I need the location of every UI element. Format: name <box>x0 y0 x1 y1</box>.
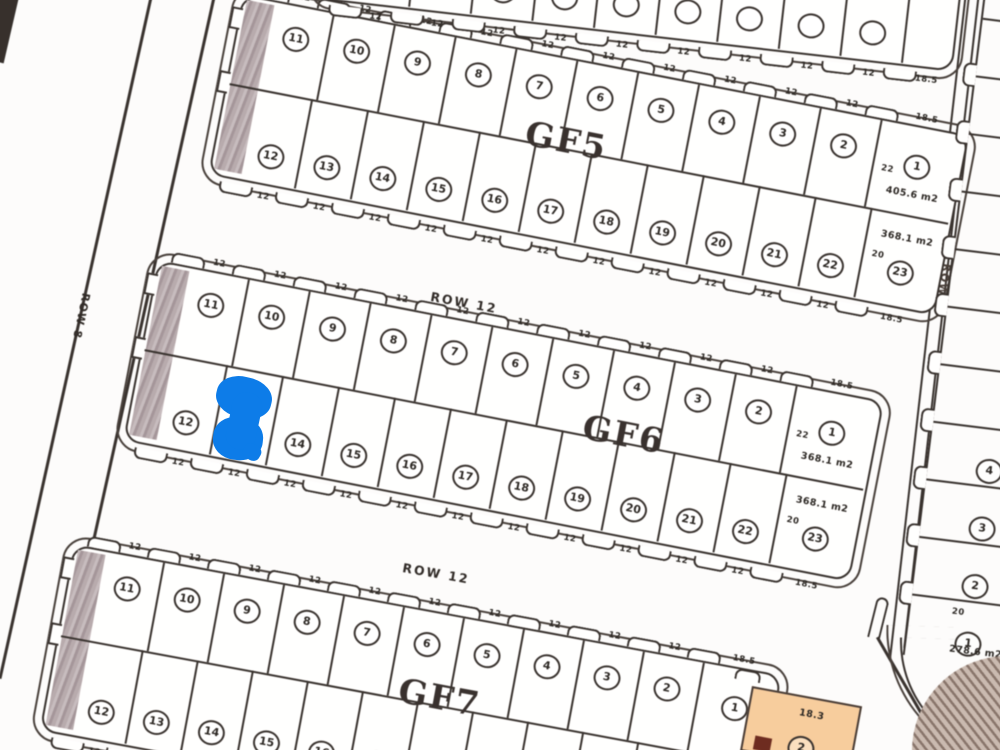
entrance-tab <box>658 346 693 363</box>
plot-number-circle: 1 <box>901 152 932 182</box>
plot-number-circle: 4 <box>974 457 1000 485</box>
plot-divider <box>620 73 639 160</box>
plot-number-circle: 5 <box>560 362 591 392</box>
entrance-tab <box>447 602 482 619</box>
plot-width-label: 12 <box>498 520 529 536</box>
plot-number-circle: 4 <box>621 373 652 403</box>
street-label-row8-left: ROW 8 <box>68 280 95 351</box>
plot-number-circle: 11 <box>111 574 142 604</box>
plot-divider <box>954 248 1000 271</box>
plot-number-circle: 22 <box>729 517 760 547</box>
plot-number-circle: 10 <box>256 302 287 332</box>
plot-divider <box>797 197 817 287</box>
plot-divider <box>377 398 397 488</box>
plot-divider <box>353 303 372 390</box>
plot-width-label: 12 <box>471 232 502 248</box>
entrance-tab <box>905 522 921 547</box>
entrance-tab <box>864 104 899 121</box>
scan-edge-shadow <box>0 0 20 63</box>
plot-divider <box>535 339 554 426</box>
plot-divider <box>601 441 621 531</box>
plot-divider <box>657 362 676 449</box>
plot-width-label: 12 <box>303 200 334 216</box>
end-plot-depth-label: 22 <box>874 162 901 177</box>
plot-divider <box>718 374 737 461</box>
end-plot-width-label: 18.5 <box>906 73 947 87</box>
plot-number-circle: 8 <box>291 607 322 637</box>
plot-number-circle: 16 <box>306 738 337 750</box>
entrance-tab <box>536 323 571 340</box>
plot-number-circle: 10 <box>341 36 372 66</box>
south-plot-dim-label: 18.3 <box>791 706 832 724</box>
plot-number-circle <box>611 0 641 19</box>
plot-divider <box>655 0 670 35</box>
plot-number-circle: 2 <box>828 131 859 161</box>
entrance-tab <box>748 567 783 584</box>
plot-number-circle: 1 <box>816 418 847 448</box>
plot-number-circle: 13 <box>226 419 257 449</box>
entrance-tab <box>387 591 422 608</box>
plot-divider <box>940 363 1000 386</box>
plot-width-label: 12 <box>776 85 807 101</box>
plot-number-circle: 12 <box>170 408 201 438</box>
plot-width-label: 12 <box>359 211 390 227</box>
entrance-tab <box>961 62 977 87</box>
plot-width-label: 12 <box>218 466 249 482</box>
plot-divider <box>267 585 286 674</box>
plot-number-circle: 3 <box>967 515 997 543</box>
plot-number-circle: 4 <box>531 652 562 682</box>
plot-divider <box>593 0 608 28</box>
plot-width-label: 12 <box>119 540 150 555</box>
plot-number-circle: 23 <box>884 258 915 288</box>
plot-width-label: 12 <box>654 61 685 77</box>
end-plot-width-label: 18.5 <box>906 110 947 127</box>
plot-divider <box>627 651 646 740</box>
plot-number-circle: 12 <box>255 142 286 172</box>
plot-number-circle <box>796 12 826 40</box>
plot-width-label: 12 <box>265 268 296 284</box>
plot-divider <box>839 0 854 56</box>
entrance-tab <box>940 235 956 260</box>
plot-divider <box>565 732 585 750</box>
block-east: 432120278.6 m2 <box>903 0 1000 676</box>
plot-number-circle: 21 <box>673 506 704 536</box>
plot-width-label: 12 <box>569 327 600 343</box>
plot-divider <box>290 681 310 750</box>
plot-width-label: 12 <box>668 45 699 58</box>
plot-divider <box>235 671 255 750</box>
plot-divider <box>686 175 706 265</box>
plot-divider <box>207 574 226 663</box>
plot-divider <box>316 14 335 101</box>
plot-divider <box>377 25 396 112</box>
plot-divider <box>180 660 200 750</box>
block-gf6: GF61211121012912812712612512412312218.51… <box>123 260 885 582</box>
plot-number-circle: 3 <box>767 119 798 149</box>
end-plot-width-label: 18.5 <box>821 376 862 393</box>
plot-divider <box>350 110 370 200</box>
entrance-tab <box>804 92 839 109</box>
plot-number-circle: 8 <box>463 60 494 90</box>
plot-divider <box>265 376 285 466</box>
plot-width-label: 12 <box>607 38 638 51</box>
plot-width-label: 12 <box>853 67 884 80</box>
entrance-tab <box>147 547 182 564</box>
end-plot-depth-label: 22 <box>789 428 816 443</box>
plot-divider <box>507 629 526 718</box>
plot-width-label: 12 <box>479 606 510 621</box>
south-plot-number-circle: 2 <box>785 734 816 750</box>
plot-number-circle: 7 <box>351 619 382 649</box>
entrance-tab <box>820 61 855 76</box>
entrance-tab <box>621 57 656 74</box>
entrance-tab <box>954 119 970 144</box>
plot-divider <box>518 142 538 232</box>
plot-width-label: 12 <box>386 498 417 514</box>
entrance-tab <box>560 45 595 62</box>
plot-width-label: 12 <box>299 573 330 588</box>
plot-number-circle: 15 <box>251 728 282 750</box>
entrance-tab <box>833 301 868 318</box>
plot-divider <box>687 663 706 750</box>
plot-number-circle: 2 <box>743 397 774 427</box>
plot-number-circle: 7 <box>524 72 555 102</box>
plot-number-circle: 2 <box>651 674 682 704</box>
plot-width-label: 12 <box>386 292 417 308</box>
plot-width-label: 12 <box>639 265 670 281</box>
entrance-tab <box>779 370 814 387</box>
plot-divider <box>947 306 1000 329</box>
end-plot-width-label: 18.5 <box>723 651 764 668</box>
plot-number-circle: 6 <box>411 630 442 660</box>
plot-number-circle: 15 <box>338 441 369 471</box>
plot-divider <box>716 0 731 42</box>
plot-number-circle: 14 <box>367 164 398 194</box>
plot-number-circle: 23 <box>799 524 830 554</box>
plot-width-label: 12 <box>527 243 558 259</box>
plot-number-circle: 12 <box>86 698 117 728</box>
plot-number-circle: 21 <box>758 240 789 270</box>
plot-divider <box>742 96 761 183</box>
plot-width-label: 12 <box>659 640 690 655</box>
plot-width-label: 12 <box>666 553 697 569</box>
plot-width-label: 12 <box>695 276 726 292</box>
plot-width-label: 12 <box>751 287 782 303</box>
plot-number-circle: 20 <box>617 495 648 525</box>
plot-width-label: 12 <box>593 49 624 65</box>
entrance-tab <box>597 334 632 351</box>
plot-width-label: 12 <box>691 351 722 367</box>
plot-divider <box>574 153 594 243</box>
scanned-cadastral-map: ROW 12 ROW 12 ROW 12 ROW 8 ROW 8 GF51211… <box>0 0 1000 750</box>
plot-number-circle: 6 <box>499 350 530 380</box>
plot-number-circle <box>488 0 518 5</box>
plot-divider <box>968 133 1000 156</box>
end-plot-depth-label: 20 <box>779 514 806 529</box>
street-label-row12-low: ROW 12 <box>401 560 470 587</box>
plot-width-label: 12 <box>792 60 823 73</box>
plot-width-label: 12 <box>274 477 305 493</box>
plot-divider <box>345 691 365 750</box>
plot-divider <box>567 640 586 729</box>
plot-area-label: 405.6 m2 <box>864 180 960 209</box>
plot-number-circle: 8 <box>378 326 409 356</box>
plot-width-label: 12 <box>599 628 630 643</box>
plot-divider <box>983 18 1000 41</box>
plot-width-label: 12 <box>330 487 361 503</box>
plot-number-circle: 14 <box>282 430 313 460</box>
plot-number-circle: 14 <box>196 718 227 748</box>
plot-divider <box>231 280 250 367</box>
plot-width-label: 12 <box>583 254 614 270</box>
plot-number-circle: 11 <box>195 291 226 321</box>
plot-number-circle: 11 <box>280 25 311 55</box>
plot-width-label: 12 <box>359 584 390 599</box>
plot-number-circle: 3 <box>591 663 622 693</box>
plot-divider <box>741 186 761 276</box>
plot-width-label: 12 <box>248 189 279 205</box>
plot-width-label: 12 <box>554 531 585 547</box>
plot-number-circle: 18 <box>506 473 537 503</box>
plot-width-label: 12 <box>289 0 320 6</box>
end-plot-width-label: 18.5 <box>786 576 827 593</box>
plot-divider <box>433 408 453 498</box>
plot-number-circle: 16 <box>479 185 510 215</box>
entrance-tab <box>898 580 914 605</box>
plot-divider <box>545 430 565 520</box>
entrance-tab <box>912 465 928 490</box>
plot-divider <box>321 387 341 477</box>
entrance-tab <box>475 311 510 328</box>
plot-number-circle: 2 <box>960 573 990 601</box>
plot-width-label: 12 <box>630 339 661 355</box>
plot-number-circle: 13 <box>311 153 342 183</box>
plot-divider <box>681 84 700 171</box>
entrance-tab <box>697 47 732 62</box>
plot-number-circle <box>550 0 580 12</box>
small-maroon-plot <box>753 736 772 750</box>
plot-number-circle: 16 <box>394 451 425 481</box>
end-plot-depth-label: 20 <box>864 248 891 263</box>
plot-number-circle <box>673 0 703 26</box>
plot-number-circle: 9 <box>231 596 262 626</box>
plot-divider <box>499 49 518 136</box>
plot-number-circle <box>858 19 888 47</box>
plot-number-circle: 22 <box>814 251 845 281</box>
plot-width-label: 12 <box>179 551 210 566</box>
entrance-tab <box>926 350 942 375</box>
plot-number-circle: 3 <box>682 385 713 415</box>
plot-number-circle: 7 <box>439 338 470 368</box>
plot-divider <box>712 463 732 553</box>
plot-number-circle: 9 <box>402 48 433 78</box>
plot-width-label: 12 <box>415 221 446 237</box>
plot-divider <box>408 0 423 7</box>
plot-divider <box>414 315 433 402</box>
plot-number-circle: 18 <box>591 207 622 237</box>
plot-divider <box>209 365 229 455</box>
plot-divider <box>656 452 676 542</box>
plot-width-label: 12 <box>730 53 761 66</box>
plot-divider <box>778 0 793 49</box>
plot-divider <box>438 37 457 124</box>
plot-divider <box>531 0 546 21</box>
plot-width-label: 12 <box>715 73 746 89</box>
plot-divider <box>327 596 346 685</box>
plot-number-circle: 15 <box>423 175 454 205</box>
plot-divider <box>630 164 650 254</box>
plot-number-circle: 13 <box>141 708 172 738</box>
entrance-tab <box>682 68 717 85</box>
plot-divider <box>470 0 485 14</box>
plot-width-label: 12 <box>508 315 539 331</box>
plot-number-circle: 6 <box>584 84 615 114</box>
plot-number-circle: 4 <box>706 107 737 137</box>
plot-width-label: 12 <box>442 509 473 525</box>
block-label: GF6 <box>580 410 668 459</box>
plot-number-circle <box>735 5 765 33</box>
entrance-tab <box>743 80 778 97</box>
plot-divider <box>489 419 509 509</box>
plot-number-circle: 10 <box>171 585 202 615</box>
entrance-tab <box>636 40 671 55</box>
entrance-tab <box>507 613 542 630</box>
plot-width-label: 12 <box>807 298 838 314</box>
entrance-tab <box>292 275 327 292</box>
entrance-tab <box>947 177 963 202</box>
block-label: GF7 <box>396 674 484 723</box>
entrance-tab <box>353 287 388 304</box>
plot-number-circle: 17 <box>450 462 481 492</box>
plot-width-label: 12 <box>836 96 867 112</box>
plot-number-circle: 19 <box>646 218 677 248</box>
plot-number-circle: 20 <box>702 229 733 259</box>
entrance-tab <box>627 636 662 653</box>
entrance-tab <box>171 252 206 269</box>
plot-divider <box>803 108 822 195</box>
plot-width-label: 12 <box>325 280 356 296</box>
entrance-tab <box>933 292 949 317</box>
plot-divider <box>294 99 314 189</box>
plot-width-label: 12 <box>239 562 270 577</box>
plot-divider <box>124 650 144 744</box>
entrance-tab <box>719 358 754 375</box>
plot-width-label: 12 <box>539 617 570 632</box>
entrance-tab <box>687 647 722 664</box>
entrance-tab <box>207 558 242 575</box>
entrance-tab <box>759 54 794 69</box>
entrance-tab <box>327 580 362 597</box>
plot-number-circle: 17 <box>535 196 566 226</box>
plot-number-circle: 5 <box>471 641 502 671</box>
end-plot-width-label: 18.5 <box>871 310 912 327</box>
plot-width-label: 12 <box>722 564 753 580</box>
plot-width-label: 12 <box>204 256 235 272</box>
plot-number-circle: 5 <box>645 96 676 126</box>
plot-width-label: 12 <box>751 362 782 378</box>
plot-width-label: 12 <box>163 455 194 471</box>
plot-divider <box>961 191 1000 214</box>
plot-divider <box>933 421 1000 444</box>
entrance-tab <box>574 33 609 48</box>
plot-map-viewport: ROW 12 ROW 12 ROW 12 ROW 8 ROW 8 GF51211… <box>0 0 1000 750</box>
plot-divider <box>147 563 166 652</box>
plot-divider <box>976 75 1000 98</box>
plot-width-label: 12 <box>610 542 641 558</box>
entrance-tab <box>919 407 935 432</box>
entrance-tab <box>567 624 602 641</box>
end-plot-depth-label: 20 <box>938 605 979 620</box>
entrance-tab <box>232 264 267 281</box>
plot-number-circle: 19 <box>561 484 592 514</box>
plot-area-label: 368.1 m2 <box>779 446 875 475</box>
plot-divider <box>475 327 494 414</box>
plot-divider <box>292 291 311 378</box>
plot-width-label: 12 <box>419 595 450 610</box>
plot-divider <box>901 0 916 63</box>
plot-divider <box>462 132 482 222</box>
entrance-tab <box>267 569 302 586</box>
plot-number-circle: 9 <box>317 314 348 344</box>
entrance-tab <box>87 536 122 553</box>
plot-divider <box>510 722 530 750</box>
plot-divider <box>406 121 426 211</box>
